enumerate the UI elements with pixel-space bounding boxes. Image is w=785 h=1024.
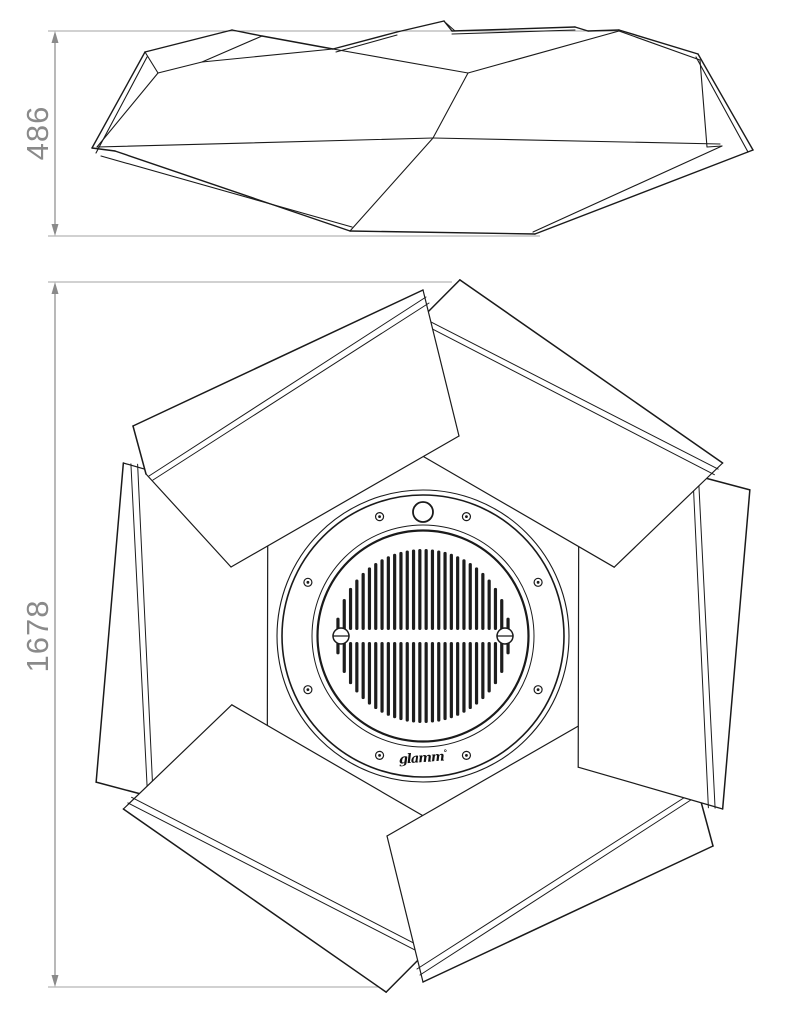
bolt-center-dot [537,688,540,691]
grille-slot [443,642,446,720]
grille-slot [488,642,491,693]
bolt-center-dot [465,515,468,518]
bolt-center-dot [378,754,381,757]
grille-slot [437,642,440,722]
grille-slot [387,642,390,716]
grille-slot [393,642,396,718]
grille-slot [380,559,383,630]
facet-edge [433,73,468,138]
grille-slot [475,567,478,630]
bolt-center-dot [465,754,468,757]
grille-slot [362,573,365,630]
grille-slot [406,642,409,722]
grille-slot [500,642,503,673]
grille-slot [343,642,346,673]
grille-slot [399,552,402,630]
plan-top-view [96,280,750,992]
facet-edge [97,138,433,147]
facet-edge [533,146,722,232]
silhouette-edge [145,30,232,52]
silhouette-edge [397,21,444,32]
facet-edge [158,62,202,73]
bolt [462,751,470,759]
silhouette-edge [588,30,619,31]
grille-slot [431,550,434,630]
facet-edge [101,156,352,227]
grille-slot [488,579,491,630]
grille-slot [418,642,421,723]
facet-edge [145,52,158,73]
drawing-svg: 486 1678 glamm° [0,0,785,1024]
grille-slot [450,554,453,630]
arrow-up-icon [52,282,59,294]
grille-slot [393,554,396,630]
bolt-center-dot [537,581,540,584]
grille-slot [412,642,415,722]
grille-slot [462,642,465,713]
side-view-dimension: 486 [20,31,622,236]
bolt-center-dot [306,688,309,691]
silhouette-edge [92,148,115,151]
grille-slot [494,642,497,684]
facet-edge [96,57,147,153]
grille-slot [500,599,503,630]
grille-slot [469,563,472,630]
grille-slot [456,556,459,630]
arrow-up-icon [52,31,59,43]
dimension-486-label: 486 [20,106,55,161]
facet-edge [700,60,707,147]
arrow-down-icon [52,224,59,236]
bolt [304,578,312,586]
grille-slot [387,556,390,630]
grille-slot [469,642,472,709]
grille-slot [425,642,428,723]
grille-slot [406,550,409,630]
bolt-center-dot [378,515,381,518]
bolt [304,686,312,694]
grille-slot [349,588,352,630]
grille-slot [374,642,377,709]
logo-text: glamm [398,750,444,768]
grille-slot [481,642,484,699]
dimension-1678-label: 1678 [20,600,55,673]
grille-slot [374,563,377,630]
screw [333,628,349,644]
facet-edge [202,49,333,62]
grille-slot [425,549,428,630]
bolt [376,751,384,759]
grille-slot [412,550,415,630]
grille-slot [431,642,434,722]
facet-edge [336,35,397,52]
facet-edge [202,36,262,62]
silhouette-edge [535,150,753,234]
grille-outer-ring [277,490,569,782]
grille-slot [437,550,440,630]
facet-edge [333,49,468,73]
grille-slot [349,642,352,684]
technical-drawing-sheet: 486 1678 glamm° [0,0,785,1024]
grille-slot [450,642,453,718]
silhouette-edge [444,21,452,31]
facet-edge [468,31,619,73]
screw [497,628,513,644]
grille-slot [475,642,478,705]
grille-slot [399,642,402,720]
grille-slot [481,573,484,630]
side-elevation-view [92,21,753,234]
bolt [376,513,384,521]
grille-slot [368,642,371,705]
bolt [534,686,542,694]
grille-slot [380,642,383,713]
grille-slot [494,588,497,630]
bolt [534,578,542,586]
bolt [462,513,470,521]
silhouette-edge [333,32,397,49]
grille-slot [343,599,346,630]
grille-slot [418,549,421,630]
facet-edge [619,31,700,60]
silhouette-edge [92,52,145,148]
grille-slot [443,552,446,630]
grille-slot [462,559,465,630]
facet-edge [350,138,433,231]
facet-edge [433,138,720,144]
grille-slot [456,642,459,716]
silhouette-edge [575,27,588,31]
grille-slot [362,642,365,699]
silhouette-edge [350,231,535,234]
grille-slot [368,567,371,630]
grille-slot [355,642,358,693]
bolt-center-dot [306,581,309,584]
silhouette-edge [262,36,333,49]
silhouette-edge [619,30,698,54]
arrow-down-icon [52,975,59,987]
center-grille [277,490,569,782]
silhouette-edge [115,151,350,231]
grille-slot [355,579,358,630]
